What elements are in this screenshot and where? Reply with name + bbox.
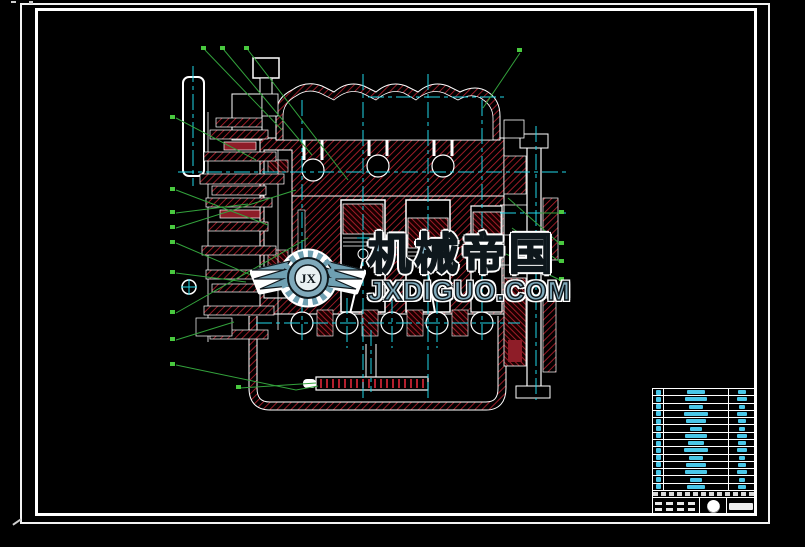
parts-list-row — [653, 396, 755, 403]
qty-cell — [729, 433, 755, 439]
qty-cell — [729, 462, 755, 468]
watermark-title: 机械帝国 — [368, 234, 571, 277]
stamp-cell — [700, 498, 727, 515]
part-name-cell — [664, 462, 729, 468]
signature-cell — [727, 498, 755, 515]
item-number-cell — [653, 455, 664, 461]
signature-smudge — [729, 503, 753, 510]
part-name-cell — [664, 455, 729, 461]
item-number-cell — [653, 389, 664, 395]
title-block-header-row — [653, 491, 755, 498]
part-name-cell — [664, 404, 729, 410]
item-number-cell — [653, 433, 664, 439]
parts-list-row — [653, 484, 755, 491]
watermark: JX 机械帝国 JXDIGUO.COM — [250, 234, 560, 316]
field-smudge — [655, 508, 697, 511]
item-number-cell — [653, 418, 664, 424]
valve-cover — [276, 84, 500, 140]
qty-cell — [729, 440, 755, 446]
parts-list-row — [653, 404, 755, 411]
item-number-cell — [653, 425, 664, 431]
logo-monogram: JX — [300, 271, 317, 286]
part-name-cell — [664, 447, 729, 453]
parts-list-row — [653, 476, 755, 483]
qty-cell — [729, 484, 755, 490]
qty-cell — [729, 418, 755, 424]
qty-cell — [729, 455, 755, 461]
item-number-cell — [653, 476, 664, 482]
qty-cell — [729, 476, 755, 482]
part-name-cell — [664, 440, 729, 446]
oil-strainer — [303, 344, 428, 390]
part-name-cell — [664, 469, 729, 475]
item-number-cell — [653, 404, 664, 410]
winged-gear-logo: JX — [250, 240, 366, 316]
part-name-cell — [664, 418, 729, 424]
part-name-cell — [664, 411, 729, 417]
item-number-cell — [653, 469, 664, 475]
parts-list-row — [653, 433, 755, 440]
field-smudge — [655, 502, 697, 505]
parts-list-row — [653, 389, 755, 396]
part-name-cell — [664, 433, 729, 439]
parts-list-row — [653, 455, 755, 462]
item-number-cell — [653, 484, 664, 490]
qty-cell — [729, 389, 755, 395]
stamp-logo-icon — [707, 500, 720, 513]
part-name-cell — [664, 425, 729, 431]
parts-list-table — [653, 389, 755, 491]
parts-list-row — [653, 425, 755, 432]
part-name-cell — [664, 476, 729, 482]
qty-cell — [729, 404, 755, 410]
item-number-cell — [653, 462, 664, 468]
qty-cell — [729, 447, 755, 453]
title-block — [652, 388, 756, 516]
item-number-cell — [653, 396, 664, 402]
watermark-url: JXDIGUO.COM — [368, 278, 571, 305]
part-name-cell — [664, 484, 729, 490]
parts-list-row — [653, 462, 755, 469]
title-block-fields — [653, 498, 700, 515]
item-number-cell — [653, 447, 664, 453]
oil-filler-cap — [232, 58, 279, 140]
item-number-cell — [653, 440, 664, 446]
item-number-cell — [653, 411, 664, 417]
part-name-cell — [664, 389, 729, 395]
qty-cell — [729, 411, 755, 417]
qty-cell — [729, 425, 755, 431]
parts-list-row — [653, 411, 755, 418]
qty-cell — [729, 469, 755, 475]
title-block-bottom — [653, 498, 755, 515]
part-name-cell — [664, 396, 729, 402]
qty-cell — [729, 396, 755, 402]
parts-list-row — [653, 469, 755, 476]
parts-list-row — [653, 440, 755, 447]
parts-list-row — [653, 447, 755, 454]
parts-list-row — [653, 418, 755, 425]
